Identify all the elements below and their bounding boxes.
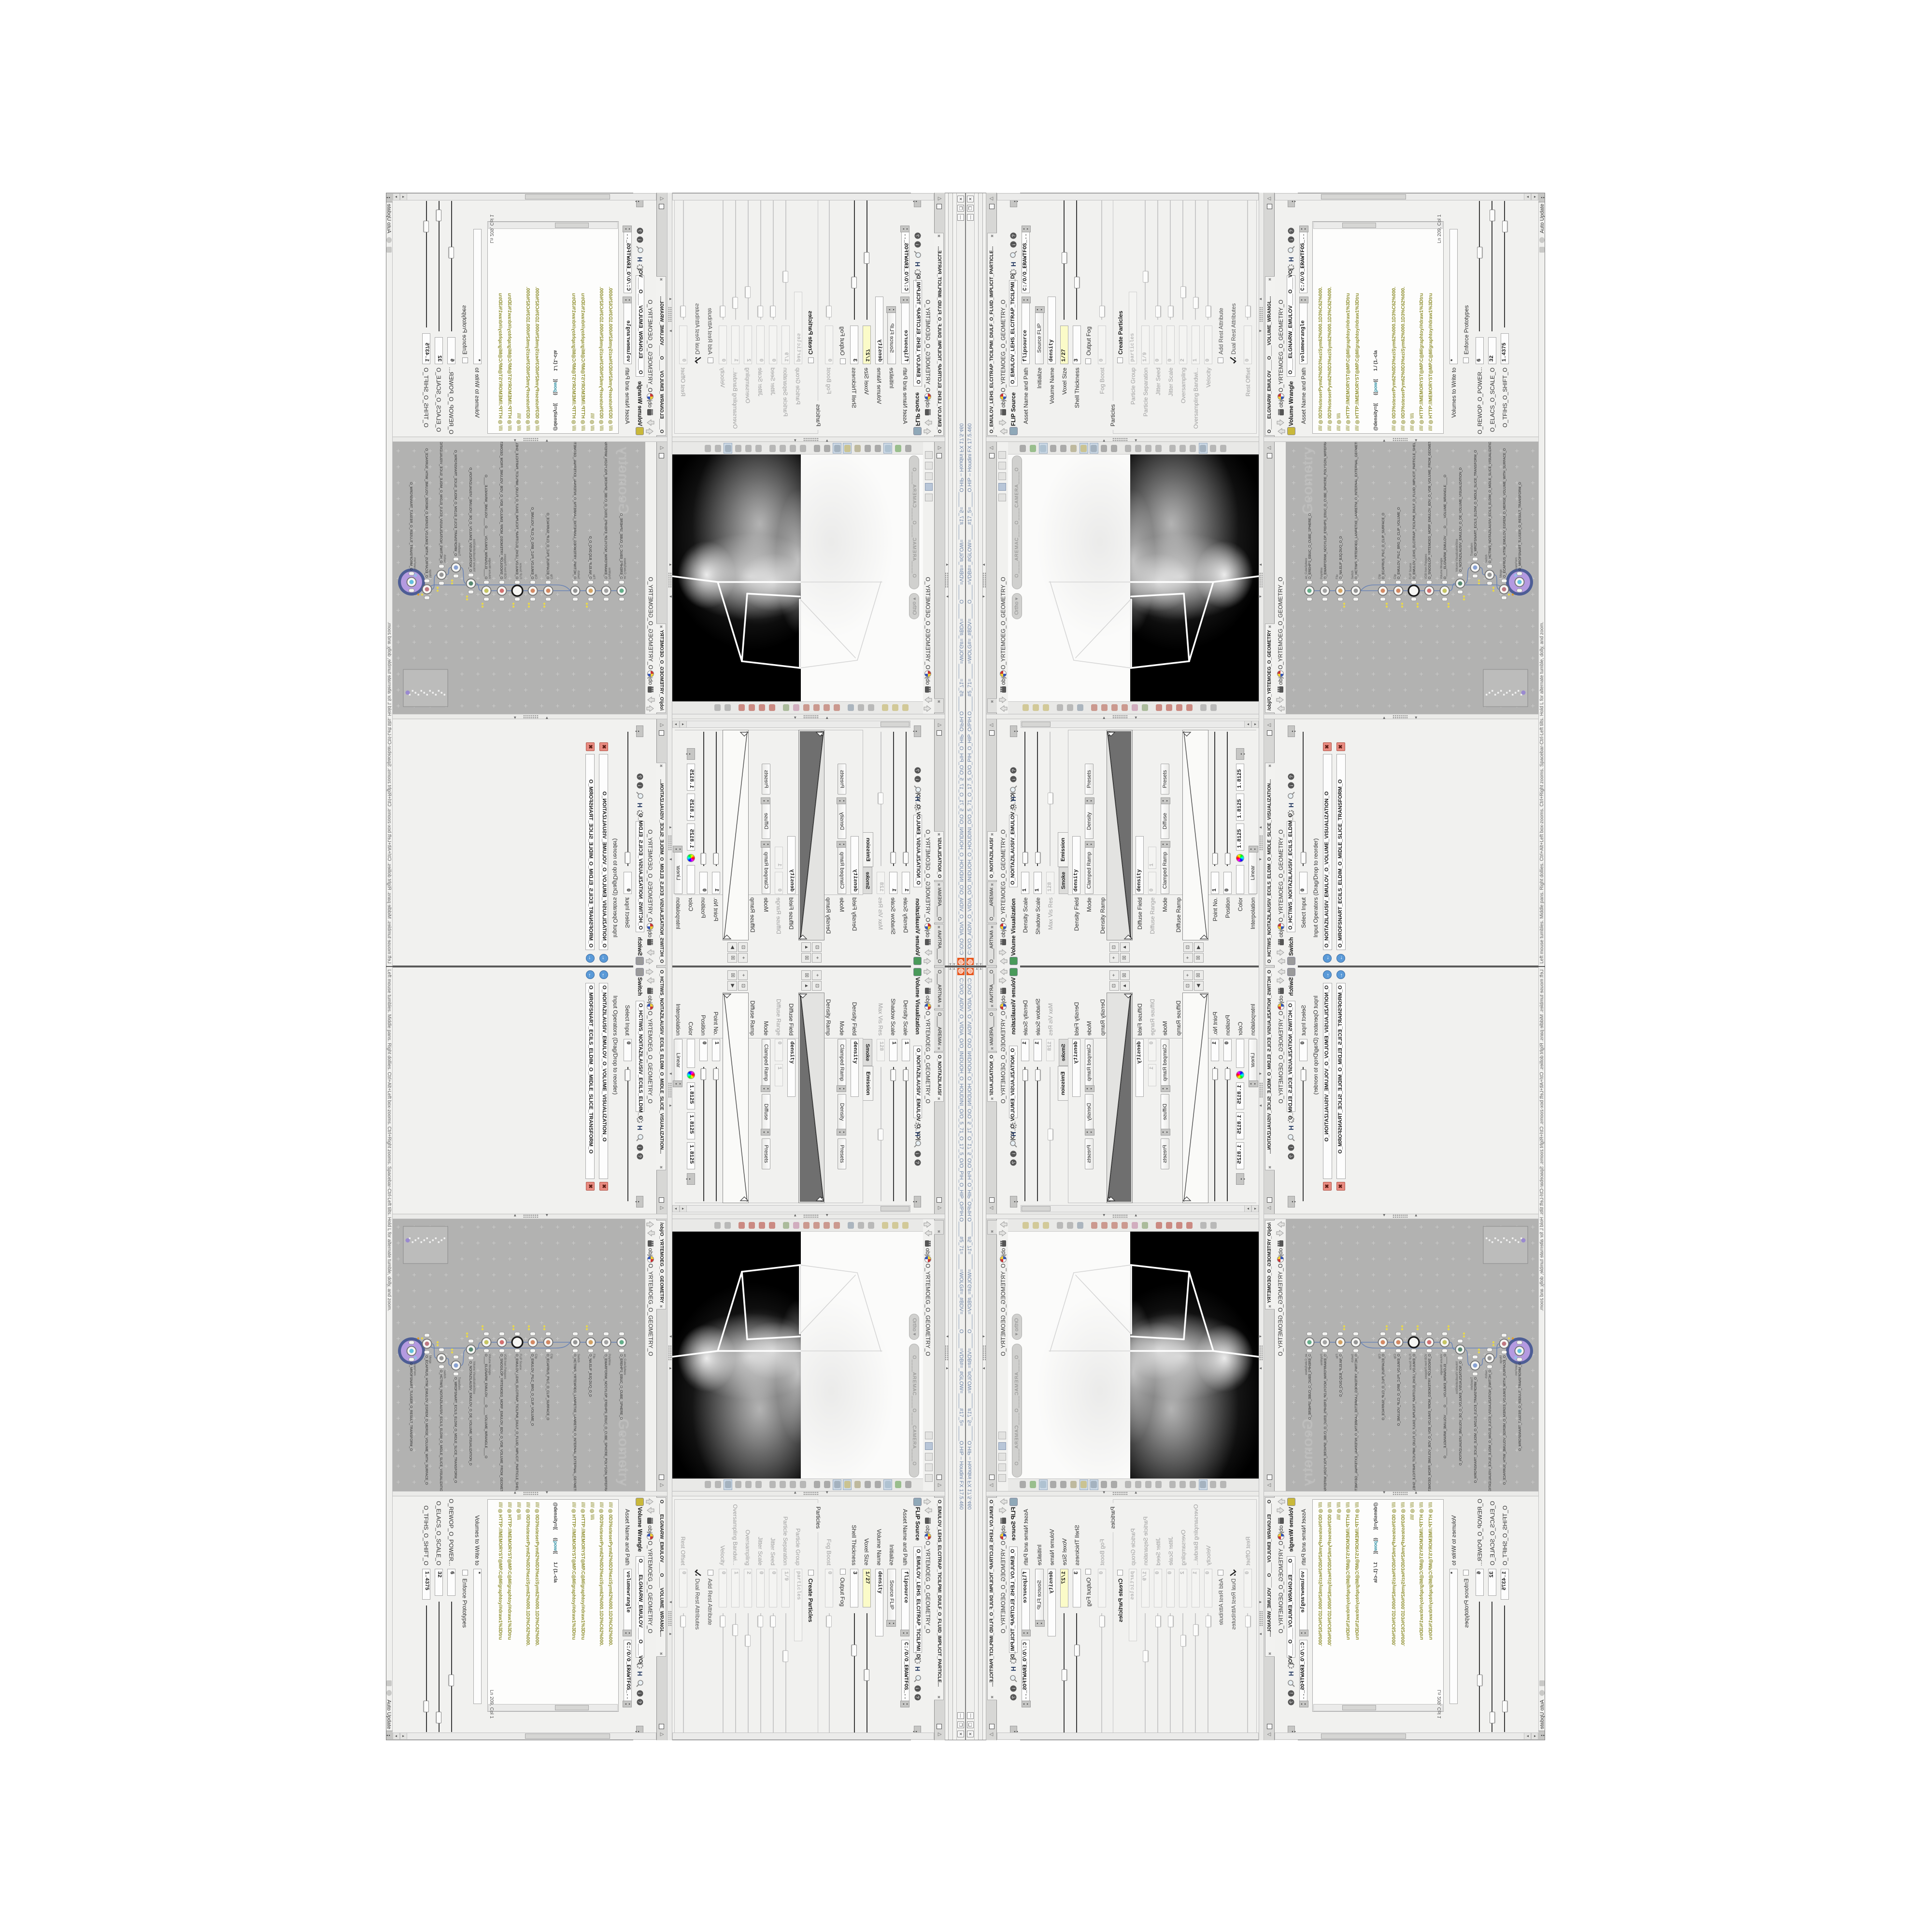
svg-text:O_MROFSNART_ECILS_ELDIM_O_MIDL: O_MROFSNART_ECILS_ELDIM_O_MIDLE_SLICE_TR…	[454, 1377, 457, 1483]
svg-text:VDB from Polygons: VDB from Polygons	[1425, 1354, 1428, 1379]
svg-text:H: H	[914, 1132, 922, 1136]
svg-text:Geometry: Geometry	[615, 447, 631, 514]
svg-text:FLIP Source: FLIP Source	[519, 1354, 522, 1370]
svg-text:i: i	[914, 244, 920, 245]
svg-text:File: File	[592, 1354, 595, 1359]
svg-text:?: ?	[1289, 775, 1294, 778]
svg-text:i: i	[637, 239, 642, 241]
svg-text:H: H	[1009, 1666, 1017, 1671]
svg-text:File: File	[592, 574, 595, 579]
svg-text:H: H	[1287, 1671, 1295, 1676]
svg-text:Clip: Clip	[1378, 1354, 1381, 1359]
svg-text:VDB from Polygons: VDB from Polygons	[1425, 554, 1428, 579]
svg-text:i: i	[1011, 244, 1017, 245]
svg-text:Clip: Clip	[550, 574, 553, 579]
svg-text:Volume VisualizationSlice: Volume VisualizationSlice	[472, 1361, 475, 1394]
svg-text:O_EMULOV_LEHS_ELCITRAP_TICILPM: O_EMULOV_LEHS_ELCITRAP_TICILPMI_DIULF_O_…	[515, 1354, 518, 1491]
svg-text:Volume Wrangle: Volume Wrangle	[488, 557, 491, 579]
svg-text:Merge: Merge	[428, 1355, 431, 1364]
svg-text:Switch: Switch	[577, 570, 580, 579]
svg-text:H: H	[914, 262, 922, 267]
svg-text:H: H	[1009, 796, 1017, 801]
svg-text:O_HCTIWS_YRTEMOEG_LANRETXE_LAN: O_HCTIWS_YRTEMOEG_LANRETXE_LANRETNI_O_IN…	[573, 442, 576, 579]
svg-text:O_NOITAZILAUSIV_EMULOV_O_DE_VO: O_NOITAZILAUSIV_EMULOV_O_DE_VOLUME_VISUA…	[469, 468, 472, 572]
svg-text:?: ?	[1289, 229, 1294, 232]
svg-text:i: i	[1289, 1147, 1294, 1148]
svg-text:PolyWire: PolyWire	[608, 1354, 611, 1366]
svg-text:O_MROFSNART_TLUSER_O_RESULT_TR: O_MROFSNART_TLUSER_O_RESULT_TRANSFORM_O	[409, 482, 412, 570]
svg-text:Geometry: Geometry	[615, 1419, 631, 1486]
svg-text:Transform: Transform	[1471, 1377, 1474, 1390]
svg-text:Transform: Transform	[457, 543, 460, 556]
svg-text:FLIP Source: FLIP Source	[1409, 563, 1412, 579]
svg-text:O_EMULOV_PILC_BRG_O_CLIP_VOLUM: O_EMULOV_PILC_BRG_O_CLIP_VOLUME_O	[530, 1354, 534, 1426]
svg-text:O_NOITAZILAUSIV_EMULOV_O_DE_VO: O_NOITAZILAUSIV_EMULOV_O_DE_VOLUME_VISUA…	[469, 1361, 472, 1465]
svg-text:O____ELGNARW_EMULOV____O____VO: O____ELGNARW_EMULOV____O____VOLUME_WRANG…	[484, 474, 487, 579]
svg-text:O_ECAFRUS_PILC_O_CLIP_SURFACE_: O_ECAFRUS_PILC_O_CLIP_SURFACE_O	[1382, 1354, 1385, 1421]
svg-text:?: ?	[1011, 1161, 1017, 1164]
svg-text:?: ?	[1011, 1696, 1017, 1699]
svg-text:O_NA.ELIF_BJQ.DUQ_O_D: O_NA.ELIF_BJQ.DUQ_O_D	[588, 536, 592, 579]
svg-text:O_SNOGILOP_YRTEMOEG_MORF_EMULO: O_SNOGILOP_YRTEMOEG_MORF_EMULOV_BDV_O_VD…	[1428, 442, 1432, 579]
svg-text:O_HCTIWS_YRTEMOEG_LANRETXE_LAN: O_HCTIWS_YRTEMOEG_LANRETXE_LANRETNI_O_IN…	[1355, 442, 1358, 579]
svg-text:O_EREHPS_EBUC_O_CUBE_SPHERE_O: O_EREHPS_EBUC_O_CUBE_SPHERE_O	[619, 1354, 623, 1420]
svg-text:FLIP Source: FLIP Source	[1409, 1354, 1412, 1370]
svg-text:O_ECAFRUS_PILC_O_CLIP_SURFACE_: O_ECAFRUS_PILC_O_CLIP_SURFACE_O	[1382, 512, 1385, 579]
svg-text:O_SNOGILOP_YRTEMOEG_MORF_EMULO: O_SNOGILOP_YRTEMOEG_MORF_EMULOV_BDV_O_VD…	[499, 442, 503, 579]
svg-text:Clip: Clip	[1394, 574, 1397, 579]
svg-text:Clip: Clip	[534, 574, 537, 579]
svg-text:O_ECAFRUS_HTIW_EMULOV_EGREM_O_: O_ECAFRUS_HTIW_EMULOV_EGREM_O_MERGE_VOLU…	[425, 1355, 428, 1485]
svg-text:?: ?	[914, 1696, 920, 1699]
svg-text:O_EMULOV_PILC_BRG_O_CLIP_VOLUM: O_EMULOV_PILC_BRG_O_CLIP_VOLUME_O	[530, 507, 534, 579]
svg-text:O____ELGNARW_EMULOV____O____VO: O____ELGNARW_EMULOV____O____VOLUME_WRANG…	[1444, 1354, 1447, 1459]
svg-text:?: ?	[637, 775, 642, 778]
svg-text:O_HCTIWS_NOITAZILAUSIV_ECILS_E: O_HCTIWS_NOITAZILAUSIV_ECILS_ELDIM_O_MID…	[1489, 442, 1492, 563]
svg-text:Volume VisualizationSlice: Volume VisualizationSlice	[1456, 539, 1459, 572]
svg-text:Switch: Switch	[1485, 554, 1488, 563]
svg-text:O_ECAFRUS_PILC_O_CLIP_SURFACE_: O_ECAFRUS_PILC_O_CLIP_SURFACE_O	[546, 512, 549, 579]
svg-text:H: H	[636, 803, 644, 808]
svg-text:O_SNOGILOP_YRTEMOEG_MORF_EMULO: O_SNOGILOP_YRTEMOEG_MORF_EMULOV_BDV_O_VD…	[499, 1354, 503, 1491]
svg-text:an_CubeSphere: an_CubeSphere	[623, 558, 626, 579]
svg-text:an_CubeSphere: an_CubeSphere	[1305, 558, 1308, 579]
svg-text:O_EMARFERIW_NOGYLOP_EREHPS_EBU: O_EMARFERIW_NOGYLOP_EREHPS_EBUC_O_CUBE_S…	[604, 1354, 607, 1491]
svg-text:O_MROFSNART_TLUSER_O_RESULT_TR: O_MROFSNART_TLUSER_O_RESULT_TRANSFORM_O	[1519, 482, 1522, 570]
svg-text:Clip: Clip	[1378, 574, 1381, 579]
svg-text:Switch: Switch	[577, 1354, 580, 1363]
svg-text:O_EMARFERIW_NOGYLOP_EREHPS_EBU: O_EMARFERIW_NOGYLOP_EREHPS_EBUC_O_CUBE_S…	[1324, 442, 1327, 579]
svg-text:O_SNOGILOP_YRTEMOEG_MORF_EMULO: O_SNOGILOP_YRTEMOEG_MORF_EMULOV_BDV_O_VD…	[1428, 1354, 1432, 1491]
svg-text:Switch: Switch	[1485, 1370, 1488, 1378]
svg-text:Transform: Transform	[413, 557, 416, 570]
svg-text:i: i	[1289, 1692, 1294, 1694]
svg-text:VDB from Polygons: VDB from Polygons	[503, 554, 506, 579]
svg-text:O_ECAFRUS_HTIW_EMULOV_EGREM_O_: O_ECAFRUS_HTIW_EMULOV_EGREM_O_MERGE_VOLU…	[425, 448, 428, 578]
svg-text:i: i	[914, 1688, 920, 1689]
svg-text:an_CubeSphere: an_CubeSphere	[623, 1354, 626, 1375]
svg-text:O_NA.ELIF_BJQ.DUQ_O_D: O_NA.ELIF_BJQ.DUQ_O_D	[1339, 1354, 1343, 1397]
svg-text:H: H	[1287, 1125, 1295, 1130]
svg-text:O_EREHPS_EBUC_O_CUBE_SPHERE_O: O_EREHPS_EBUC_O_CUBE_SPHERE_O	[1308, 513, 1312, 579]
svg-text:O_MROFSNART_ECILS_ELDIM_O_MIDL: O_MROFSNART_ECILS_ELDIM_O_MIDLE_SLICE_TR…	[1474, 450, 1477, 556]
svg-text:Clip: Clip	[534, 1354, 537, 1359]
svg-text:O_EMARFERIW_NOGYLOP_EREHPS_EBU: O_EMARFERIW_NOGYLOP_EREHPS_EBUC_O_CUBE_S…	[604, 442, 607, 579]
svg-text:Merge: Merge	[1500, 1355, 1503, 1364]
svg-text:H: H	[1287, 257, 1295, 262]
svg-text:i: i	[637, 1147, 642, 1148]
svg-text:i: i	[914, 1153, 920, 1154]
svg-text:O_EMULOV_LEHS_ELCITRAP_TICILPM: O_EMULOV_LEHS_ELCITRAP_TICILPMI_DIULF_O_…	[515, 442, 518, 579]
svg-text:Transform: Transform	[1515, 557, 1518, 570]
svg-text:Volume VisualizationSlice: Volume VisualizationSlice	[1456, 1361, 1459, 1394]
svg-text:File: File	[1336, 574, 1339, 579]
svg-text:Switch: Switch	[443, 1370, 446, 1378]
svg-text:Switch: Switch	[1351, 1354, 1354, 1363]
svg-text:O_EREHPS_EBUC_O_CUBE_SPHERE_O: O_EREHPS_EBUC_O_CUBE_SPHERE_O	[619, 513, 623, 579]
svg-text:Geometry: Geometry	[1300, 447, 1316, 514]
svg-text:O_HCTIWS_NOITAZILAUSIV_ECILS_E: O_HCTIWS_NOITAZILAUSIV_ECILS_ELDIM_O_MID…	[439, 442, 442, 563]
svg-text:O_ECAFRUS_HTIW_EMULOV_EGREM_O_: O_ECAFRUS_HTIW_EMULOV_EGREM_O_MERGE_VOLU…	[1503, 448, 1506, 578]
svg-text:O_NOITAZILAUSIV_EMULOV_O_DE_VO: O_NOITAZILAUSIV_EMULOV_O_DE_VOLUME_VISUA…	[1459, 1361, 1463, 1465]
svg-text:?: ?	[1289, 1155, 1294, 1158]
svg-text:O_ECAFRUS_PILC_O_CLIP_SURFACE_: O_ECAFRUS_PILC_O_CLIP_SURFACE_O	[546, 1354, 549, 1421]
svg-text:Transform: Transform	[1471, 543, 1474, 556]
svg-text:Transform: Transform	[457, 1377, 460, 1390]
svg-text:O_EMULOV_LEHS_ELCITRAP_TICILPM: O_EMULOV_LEHS_ELCITRAP_TICILPMI_DIULF_O_…	[1413, 1354, 1416, 1491]
svg-text:?: ?	[637, 1701, 642, 1704]
svg-text:Transform: Transform	[1515, 1363, 1518, 1376]
svg-text:Switch: Switch	[443, 554, 446, 563]
svg-text:?: ?	[914, 769, 920, 772]
svg-text:O_MROFSNART_TLUSER_O_RESULT_TR: O_MROFSNART_TLUSER_O_RESULT_TRANSFORM_O	[409, 1363, 412, 1451]
svg-text:H: H	[636, 257, 644, 262]
svg-text:O_HCTIWS_NOITAZILAUSIV_ECILS_E: O_HCTIWS_NOITAZILAUSIV_ECILS_ELDIM_O_MID…	[1489, 1370, 1492, 1491]
svg-text:i: i	[914, 779, 920, 780]
svg-text:H: H	[1287, 803, 1295, 808]
svg-text:H: H	[1009, 262, 1017, 267]
svg-text:?: ?	[1289, 1701, 1294, 1704]
svg-text:?: ?	[914, 1161, 920, 1164]
svg-text:Geometry: Geometry	[1300, 1419, 1316, 1486]
svg-text:O_EREHPS_EBUC_O_CUBE_SPHERE_O: O_EREHPS_EBUC_O_CUBE_SPHERE_O	[1308, 1354, 1312, 1420]
svg-text:?: ?	[637, 1155, 642, 1158]
svg-text:Switch: Switch	[1351, 570, 1354, 579]
svg-text:i: i	[1289, 785, 1294, 786]
svg-text:O____ELGNARW_EMULOV____O____VO: O____ELGNARW_EMULOV____O____VOLUME_WRANG…	[484, 1354, 487, 1459]
svg-text:H: H	[1009, 1132, 1017, 1136]
svg-text:an_CubeSphere: an_CubeSphere	[1305, 1354, 1308, 1375]
svg-text:i: i	[637, 785, 642, 786]
svg-text:i: i	[1011, 1688, 1017, 1689]
svg-text:O_EMULOV_PILC_BRG_O_CLIP_VOLUM: O_EMULOV_PILC_BRG_O_CLIP_VOLUME_O	[1397, 507, 1401, 579]
svg-text:O_HCTIWS_YRTEMOEG_LANRETXE_LAN: O_HCTIWS_YRTEMOEG_LANRETXE_LANRETNI_O_IN…	[573, 1354, 576, 1491]
svg-text:Transform: Transform	[413, 1363, 416, 1376]
svg-text:?: ?	[637, 229, 642, 232]
svg-text:O_HCTIWS_YRTEMOEG_LANRETXE_LAN: O_HCTIWS_YRTEMOEG_LANRETXE_LANRETNI_O_IN…	[1355, 1354, 1358, 1491]
svg-text:O_ECAFRUS_HTIW_EMULOV_EGREM_O_: O_ECAFRUS_HTIW_EMULOV_EGREM_O_MERGE_VOLU…	[1503, 1355, 1506, 1485]
svg-text:PolyWire: PolyWire	[1321, 567, 1323, 579]
svg-text:?: ?	[914, 234, 920, 237]
svg-text:Clip: Clip	[550, 1354, 553, 1359]
svg-text:Volume Wrangle: Volume Wrangle	[488, 1354, 491, 1376]
svg-text:O_NA.ELIF_BJQ.DUQ_O_D: O_NA.ELIF_BJQ.DUQ_O_D	[1339, 536, 1343, 579]
svg-text:Merge: Merge	[428, 569, 431, 578]
svg-text:O_EMULOV_LEHS_ELCITRAP_TICILPM: O_EMULOV_LEHS_ELCITRAP_TICILPMI_DIULF_O_…	[1413, 442, 1416, 579]
svg-text:O_EMARFERIW_NOGYLOP_EREHPS_EBU: O_EMARFERIW_NOGYLOP_EREHPS_EBUC_O_CUBE_S…	[1324, 1354, 1327, 1491]
svg-text:O_HCTIWS_NOITAZILAUSIV_ECILS_E: O_HCTIWS_NOITAZILAUSIV_ECILS_ELDIM_O_MID…	[439, 1370, 442, 1491]
svg-text:O_MROFSNART_ECILS_ELDIM_O_MIDL: O_MROFSNART_ECILS_ELDIM_O_MIDLE_SLICE_TR…	[454, 450, 457, 556]
svg-text:i: i	[637, 1692, 642, 1694]
svg-text:?: ?	[1011, 234, 1017, 237]
svg-text:Merge: Merge	[1500, 569, 1503, 578]
svg-text:i: i	[1289, 239, 1294, 241]
svg-text:H: H	[636, 1671, 644, 1676]
svg-text:FLIP Source: FLIP Source	[519, 563, 522, 579]
svg-text:O_NOITAZILAUSIV_EMULOV_O_DE_VO: O_NOITAZILAUSIV_EMULOV_O_DE_VOLUME_VISUA…	[1459, 468, 1463, 572]
svg-text:O____ELGNARW_EMULOV____O____VO: O____ELGNARW_EMULOV____O____VOLUME_WRANG…	[1444, 474, 1447, 579]
svg-text:H: H	[914, 796, 922, 801]
svg-text:?: ?	[1011, 769, 1017, 772]
svg-text:O_MROFSNART_TLUSER_O_RESULT_TR: O_MROFSNART_TLUSER_O_RESULT_TRANSFORM_O	[1519, 1363, 1522, 1451]
svg-text:O_MROFSNART_ECILS_ELDIM_O_MIDL: O_MROFSNART_ECILS_ELDIM_O_MIDLE_SLICE_TR…	[1474, 1377, 1477, 1483]
svg-text:Clip: Clip	[1394, 1354, 1397, 1359]
svg-text:i: i	[1011, 779, 1017, 780]
svg-text:H: H	[636, 1125, 644, 1130]
svg-text:PolyWire: PolyWire	[1321, 1354, 1323, 1366]
svg-text:Volume Wrangle: Volume Wrangle	[1440, 557, 1443, 579]
svg-text:O_NA.ELIF_BJQ.DUQ_O_D: O_NA.ELIF_BJQ.DUQ_O_D	[588, 1354, 592, 1397]
svg-text:VDB from Polygons: VDB from Polygons	[503, 1354, 506, 1379]
svg-text:H: H	[914, 1666, 922, 1671]
svg-text:O_EMULOV_PILC_BRG_O_CLIP_VOLUM: O_EMULOV_PILC_BRG_O_CLIP_VOLUME_O	[1397, 1354, 1401, 1426]
svg-text:i: i	[1011, 1153, 1017, 1154]
svg-text:File: File	[1336, 1354, 1339, 1359]
svg-text:Volume Wrangle: Volume Wrangle	[1440, 1354, 1443, 1376]
svg-text:Volume VisualizationSlice: Volume VisualizationSlice	[472, 539, 475, 572]
svg-text:PolyWire: PolyWire	[608, 567, 611, 579]
